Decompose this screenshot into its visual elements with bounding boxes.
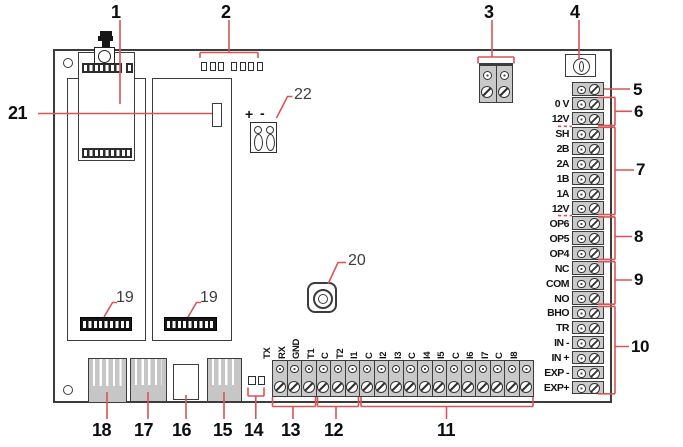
terminal-row: BHO (572, 306, 604, 320)
terminal-label: 2B (507, 143, 569, 155)
callout-number: 19 (200, 290, 218, 306)
terminal-row: 12V (572, 112, 604, 126)
terminal-label: NO (507, 293, 569, 305)
callout-number: 9 (634, 271, 643, 288)
terminal-label: BHO (507, 307, 569, 319)
pin-hole-icon (254, 126, 262, 134)
terminal-row: 2A (572, 157, 604, 171)
terminal-row: 1A (572, 187, 604, 201)
screw-head-icon (573, 58, 590, 75)
terminal: T2 (345, 361, 360, 396)
terminal: TX (273, 361, 287, 396)
terminal-label: T2 (335, 329, 347, 359)
terminal: C (417, 361, 432, 396)
callout-number: 7 (636, 161, 645, 178)
screw-icon (483, 71, 492, 80)
terminal-label: OP6 (507, 218, 569, 230)
callout-number: 15 (213, 421, 232, 439)
dip-switch (80, 317, 132, 331)
terminal: I4 (432, 361, 447, 396)
terminal-label: T1 (306, 329, 318, 359)
terminal-label: I4 (422, 329, 434, 359)
pin-slot-icon (254, 134, 263, 151)
terminal-row (572, 82, 604, 96)
terminal-label: COM (507, 278, 569, 290)
terminal-row: TR (572, 321, 604, 335)
terminal-row: 12V (572, 201, 604, 215)
mounting-hole-icon (63, 385, 73, 395)
pad (231, 62, 237, 71)
terminal-label: 2A (507, 158, 569, 170)
terminal-label: I2 (378, 329, 390, 359)
divider (496, 66, 497, 102)
mounting-hole-icon (63, 58, 73, 68)
terminal-label: 1A (507, 188, 569, 200)
link-jumper (212, 103, 222, 127)
terminal-row: 1B (572, 172, 604, 186)
jumper-pin (248, 376, 256, 385)
callout-number: 16 (172, 421, 191, 439)
terminal-label: C (407, 329, 419, 359)
module-connector-strip (82, 63, 122, 73)
rj-socket (88, 358, 127, 403)
terminal-label: EXP - (507, 367, 569, 379)
callout-number: 3 (484, 3, 494, 21)
terminal-label: TX (262, 329, 274, 359)
callout-number: 20 (348, 253, 366, 269)
callout-number: 19 (116, 290, 134, 306)
callout-number: 13 (281, 421, 300, 439)
terminal-label: 12V (507, 203, 569, 215)
terminal-row: EXP+ (572, 381, 604, 395)
terminal: I5 (446, 361, 461, 396)
terminal: RX (287, 361, 302, 396)
pad (248, 62, 254, 71)
terminal: C (330, 361, 345, 396)
module-connector-strip (126, 63, 133, 73)
terminal: C (461, 361, 476, 396)
terminal-row: OP5 (572, 231, 604, 245)
terminal-row: NO (572, 291, 604, 305)
callout-number: 12 (324, 421, 343, 439)
terminal: C (374, 361, 389, 396)
callout-number: 17 (134, 421, 153, 439)
rj-socket (130, 358, 167, 402)
terminal-label: 0 V (507, 98, 569, 110)
antenna-base (94, 47, 115, 64)
pad (240, 62, 246, 71)
callout-number: 8 (634, 228, 643, 245)
terminal-row: IN + (572, 351, 604, 365)
pcb-diagram: + - TX RX GND T1 C T2 I1 C I2 I3 C I4 I5… (0, 0, 683, 447)
pad (257, 62, 263, 71)
fuse-holder (565, 54, 596, 77)
terminal-label: GND (291, 329, 303, 359)
terminal-label: SH (507, 128, 569, 140)
terminal-label: I7 (480, 329, 492, 359)
terminal-row: EXP - (572, 366, 604, 380)
terminal-label: C (494, 329, 506, 359)
rj-socket (207, 358, 242, 402)
battery-connector (250, 122, 277, 153)
callout-number: 6 (634, 103, 643, 120)
callout-number: 1 (111, 3, 121, 21)
terminal: I7 (490, 361, 505, 396)
terminal-row: OP6 (572, 216, 604, 230)
terminal-row: 0 V (572, 97, 604, 111)
pad (201, 62, 207, 71)
screw-icon (500, 71, 509, 80)
pad (218, 62, 224, 71)
module-connector-strip (82, 148, 132, 158)
screw-icon (481, 86, 493, 98)
callout-number: 14 (244, 421, 263, 439)
callout-number: 4 (570, 3, 580, 21)
terminal-row: OP4 (572, 246, 604, 260)
jumper-pin (258, 376, 265, 385)
terminal-label: C (364, 329, 376, 359)
dip-switch (164, 317, 217, 331)
pin-slot-icon (266, 134, 275, 151)
pad (210, 62, 216, 71)
terminal-label: I6 (465, 329, 477, 359)
terminal-label: I1 (349, 329, 361, 359)
terminal-label: I3 (393, 329, 405, 359)
pin-hole-icon (266, 126, 274, 134)
terminal: I3 (403, 361, 418, 396)
terminal-label: IN - (507, 337, 569, 349)
callout-number: 18 (92, 421, 111, 439)
terminal-row: SH (572, 127, 604, 141)
terminal-row: IN - (572, 336, 604, 350)
usb-socket (173, 364, 199, 400)
bottom-terminal-strip: TX RX GND T1 C T2 I1 C I2 I3 C I4 I5 C I… (272, 360, 534, 397)
terminal-row: 2B (572, 142, 604, 156)
terminal-row: NC (572, 261, 604, 275)
terminal-label: C (451, 329, 463, 359)
callout-number: 21 (8, 104, 27, 122)
terminal-label: TR (507, 322, 569, 334)
callout-number: 2 (221, 3, 231, 21)
terminal: I6 (475, 361, 490, 396)
terminal: I1 (359, 361, 374, 396)
callout-number: 5 (633, 81, 642, 98)
terminal-label: RX (277, 329, 289, 359)
terminal: GND (301, 361, 316, 396)
minus-label: - (260, 106, 265, 120)
terminal: I2 (388, 361, 403, 396)
terminal-row: COM (572, 276, 604, 290)
terminal-label: OP4 (507, 248, 569, 260)
tamper-button (307, 282, 337, 313)
terminal-label: 1B (507, 173, 569, 185)
terminal: T1 (316, 361, 331, 396)
terminal-label: I5 (436, 329, 448, 359)
callout-number: 11 (437, 421, 455, 439)
screw-icon (498, 86, 510, 98)
terminal-label: OP5 (507, 233, 569, 245)
callout-number: 10 (631, 338, 649, 355)
terminal-label: IN + (507, 352, 569, 364)
callout-number: 22 (294, 87, 312, 103)
terminal-label: NC (507, 263, 569, 275)
terminal-label: 12V (507, 113, 569, 125)
terminal-label: EXP+ (507, 382, 569, 394)
terminal-label: C (320, 329, 332, 359)
plus-label: + (245, 107, 253, 121)
